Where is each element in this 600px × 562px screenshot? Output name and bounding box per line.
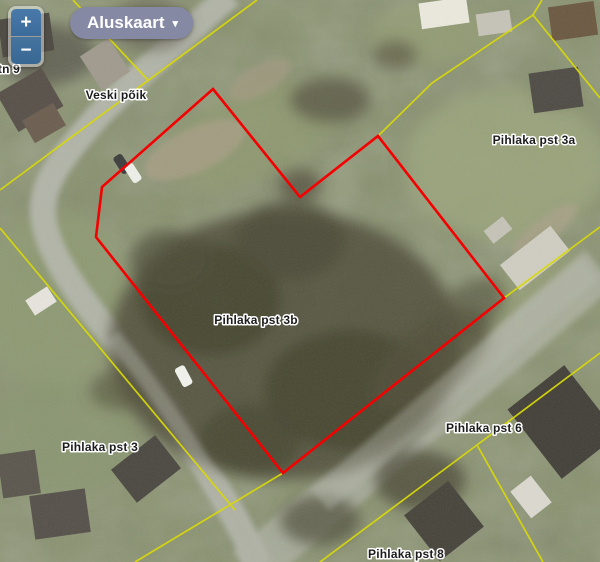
zoom-out-button[interactable]: −: [11, 37, 41, 64]
map-viewer: ki tn 9 Veski põik Pihlaka pst 3a Pihlak…: [0, 0, 600, 562]
zoom-in-button[interactable]: +: [11, 9, 41, 36]
map-label-pihlaka-pst-6: Pihlaka pst 6: [446, 421, 522, 435]
map-label-pihlaka-pst-3: Pihlaka pst 3: [62, 440, 138, 454]
basemap-button-label: Aluskaart: [87, 13, 164, 33]
map-label-pihlaka-pst-3a: Pihlaka pst 3a: [493, 133, 576, 147]
aerial-photo-background: [0, 0, 600, 562]
zoom-control: + −: [8, 6, 44, 67]
chevron-down-icon: ▾: [172, 19, 178, 30]
aerial-map-canvas[interactable]: ki tn 9 Veski põik Pihlaka pst 3a Pihlak…: [0, 0, 600, 562]
basemap-dropdown-button[interactable]: Aluskaart ▾: [70, 7, 193, 39]
map-label-veski-poik: Veski põik: [86, 88, 147, 102]
map-label-pihlaka-pst-3b: Pihlaka pst 3b: [214, 313, 298, 327]
map-label-pihlaka-pst-8: Pihlaka pst 8: [368, 547, 444, 561]
